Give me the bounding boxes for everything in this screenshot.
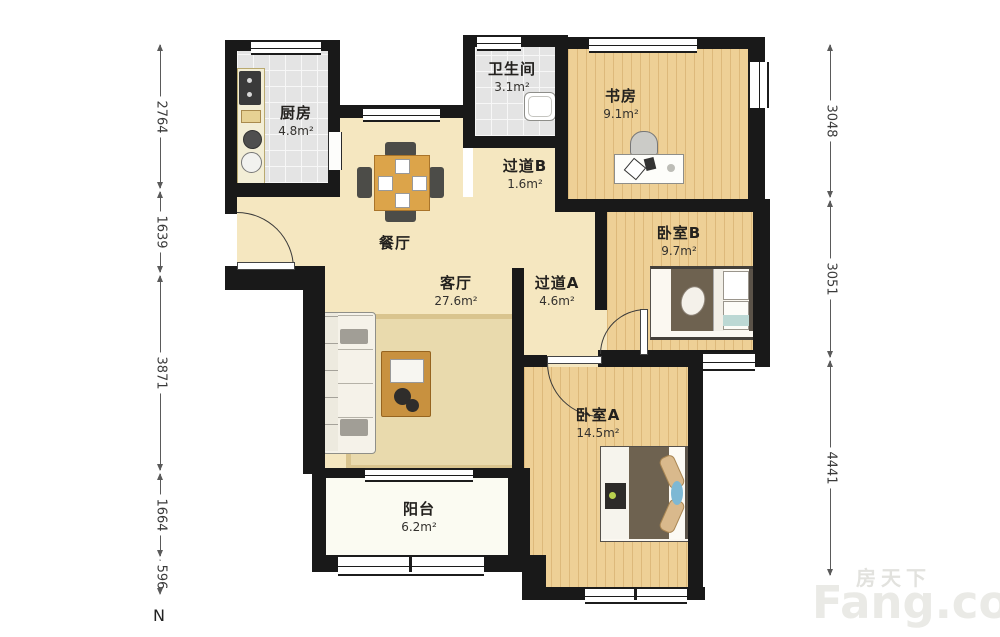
wall <box>753 199 770 367</box>
cutting-board-icon <box>241 110 261 123</box>
north-indicator: N <box>153 606 165 625</box>
room-label-bathroom: 卫生间 3.1m² <box>488 58 536 94</box>
sink-icon <box>243 130 262 149</box>
window <box>703 352 755 371</box>
dim-right-3048: 3048 <box>830 45 831 197</box>
watermark-logo: Fang.com <box>812 576 1000 629</box>
room-label-kitchen: 厨房 4.8m² <box>278 102 314 138</box>
wall <box>555 199 768 212</box>
window-mullion <box>409 555 412 572</box>
wall <box>508 468 530 572</box>
wall <box>595 212 607 310</box>
room-label-study: 书房 9.1m² <box>603 85 639 121</box>
wall <box>463 35 475 148</box>
wall <box>325 468 365 478</box>
bathtub-icon <box>524 92 556 121</box>
wall <box>688 360 703 600</box>
dim-right-3051: 3051 <box>830 201 831 357</box>
dim-left-596: 596 <box>160 560 161 594</box>
sofa <box>322 312 376 454</box>
wall <box>463 136 568 148</box>
window <box>748 62 769 108</box>
desk-chair <box>630 131 658 156</box>
dim-right-4441: 4441 <box>830 361 831 575</box>
room-label-bedroomB: 卧室B 9.7m² <box>657 222 701 258</box>
bedA-bed <box>600 446 690 542</box>
stove-icon <box>239 71 261 105</box>
wall <box>512 268 524 468</box>
window <box>477 35 521 51</box>
wall <box>225 183 340 197</box>
dim-left-1664: 1664 <box>160 474 161 556</box>
room-label-bedroomA: 卧室A 14.5m² <box>576 404 621 440</box>
wall <box>225 40 237 197</box>
floorplan-canvas: 厨房 4.8m² 卫生间 3.1m² 书房 9.1m² 过道B 1.6m² 餐厅… <box>0 0 1000 637</box>
wall <box>303 282 325 474</box>
tv-icon <box>605 483 626 509</box>
dim-left-3871: 3871 <box>160 276 161 470</box>
study-desk <box>614 154 684 184</box>
dim-left-1639: 1639 <box>160 192 161 272</box>
wall <box>555 35 568 212</box>
room-label-corridorA: 过道A 4.6m² <box>535 272 580 308</box>
room-label-dining: 餐厅 <box>379 232 411 253</box>
bedroomA-door-leaf <box>547 356 602 364</box>
wall <box>225 197 237 214</box>
kitchen-door-opening <box>328 132 342 170</box>
window <box>363 107 440 122</box>
wall <box>328 170 340 197</box>
dining-table <box>374 155 430 211</box>
window <box>251 40 321 55</box>
window <box>589 37 697 53</box>
balcony-sliding-door <box>365 468 473 482</box>
bedroomB-door-leaf <box>640 309 648 355</box>
entry-door-leaf <box>237 262 295 270</box>
dim-left-2764: 2764 <box>160 45 161 188</box>
wall <box>512 355 547 367</box>
window-mullion <box>634 587 637 600</box>
room-label-living: 客厅 27.6m² <box>434 272 477 308</box>
coffee-table <box>381 351 431 417</box>
basin-icon <box>241 152 262 173</box>
wall <box>328 40 340 132</box>
dining-chair-west <box>357 167 372 198</box>
dining-chair-east <box>429 167 444 198</box>
room-label-corridorB: 过道B 1.6m² <box>503 155 547 191</box>
bedB-bed <box>650 266 755 340</box>
room-label-balcony: 阳台 6.2m² <box>401 498 437 534</box>
